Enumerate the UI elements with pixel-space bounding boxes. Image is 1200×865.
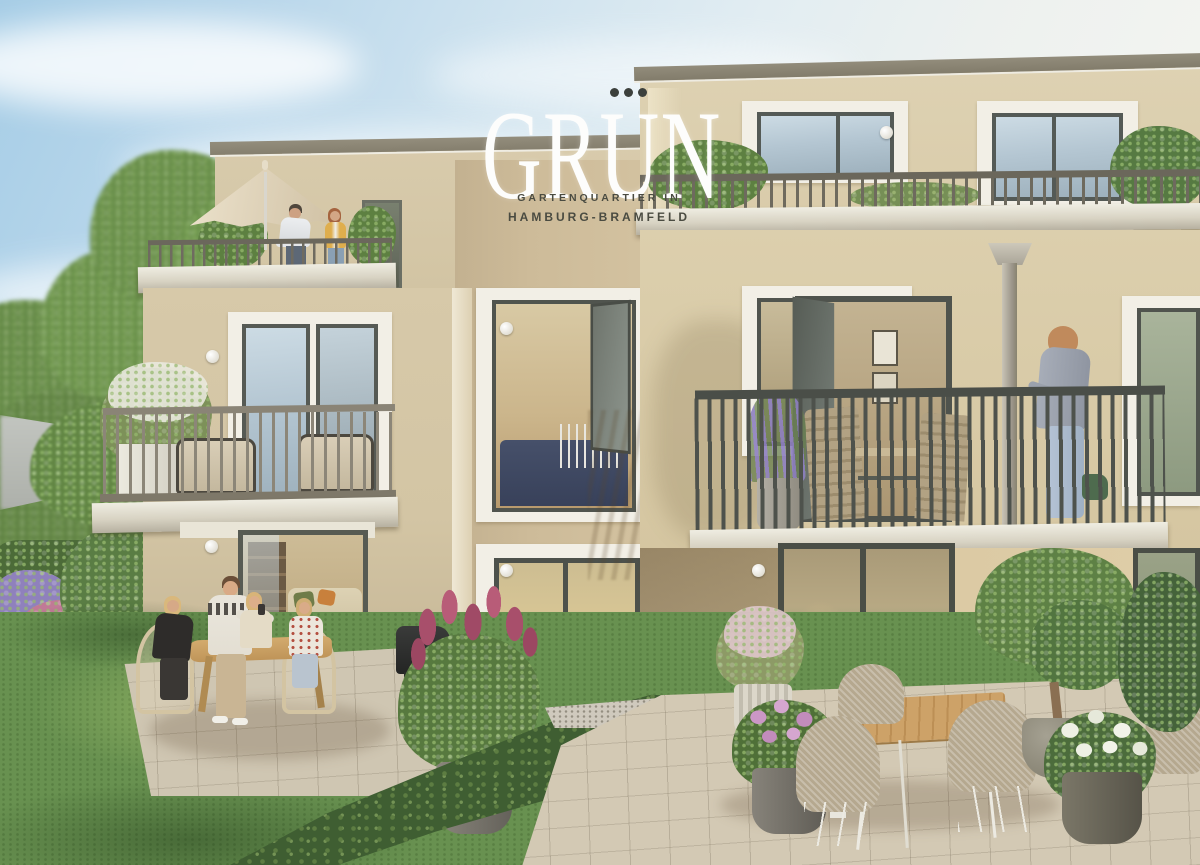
potted-tree-foliage [1030, 600, 1130, 690]
person-woman-seated-center [236, 592, 280, 662]
logo-tagline-line2: HAMBURG-BRAMFELD [464, 210, 734, 224]
legs [160, 658, 188, 700]
person-woman-seated-right [284, 598, 336, 694]
left-balcony-railing-bars [103, 412, 395, 496]
legs-khaki [216, 654, 246, 718]
legs-jeans [292, 654, 318, 688]
wall-vent [500, 322, 513, 335]
architectural-rendering: GRUN GARTENQUARTIER IN HAMBURG-BRAMFELD [0, 0, 1200, 865]
torso [240, 610, 272, 648]
torso-blazer [152, 612, 195, 662]
white-hydrangea-blooms [1050, 700, 1150, 776]
shoe [232, 718, 248, 725]
window-glass [757, 112, 894, 179]
logo-tagline-line1: GARTENQUARTIER IN [464, 192, 734, 204]
torso-floral [289, 616, 323, 656]
wall-vent [880, 126, 893, 139]
wall-vent [500, 564, 513, 577]
wicker-chair [796, 716, 880, 812]
cloud [0, 20, 360, 110]
wicker-chair [838, 664, 904, 724]
stone-pot [1062, 772, 1142, 844]
mid-balcony-railing-bars [694, 394, 1165, 535]
framed-picture [872, 330, 898, 366]
wall-vent [206, 350, 219, 363]
cup [258, 604, 265, 615]
wicker-chair-legs [958, 786, 1028, 832]
head [299, 602, 310, 614]
head [167, 600, 179, 612]
wall-vent [205, 540, 218, 553]
umbrella-finial [262, 160, 268, 170]
head [330, 211, 340, 221]
pale-pink-blooms [724, 606, 796, 658]
wicker-chair-legs [804, 802, 870, 846]
window-mullion [836, 114, 840, 177]
lilac-blooms [408, 582, 538, 682]
shoe [212, 716, 228, 723]
wall-vent [752, 564, 765, 577]
